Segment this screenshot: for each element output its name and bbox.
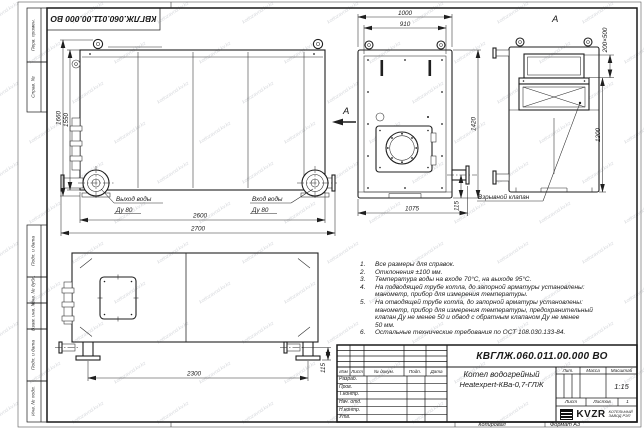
product-name-cell: Котел водогрейный Heatexpert-КВа-0,7-ГЛЖ xyxy=(447,369,556,390)
col-podp: Подп. xyxy=(404,369,426,374)
lit-mass-scale-header: Лит. Масса Масштаб xyxy=(556,367,637,375)
side-view: 1660 1550 2600 2700 Выход воды Ду 80 Вхо… xyxy=(56,39,357,236)
outlet-dn: Ду 80 xyxy=(115,207,133,214)
frame-label-podp-data-2: Подп. и дата xyxy=(32,340,37,370)
dim-2600: 2600 xyxy=(192,213,208,220)
signature-rows: Разраб. Пров. Т.контр. Нач. отд. Н.контр… xyxy=(339,376,369,422)
inlet-label: Вход воды xyxy=(252,195,283,203)
note-line: 1.Все размеры для справок. xyxy=(360,261,634,269)
dim-910: 910 xyxy=(400,21,411,28)
scale-label: Масштаб xyxy=(606,368,637,373)
logo-cell: KVZR КОТЕЛЬНЫЙ ЗАВОД РЭП xyxy=(556,406,637,422)
inlet-dn: Ду 80 xyxy=(251,207,269,214)
mass-label: Масса xyxy=(580,368,606,373)
row-prov: Пров. xyxy=(339,384,369,392)
top-stamp-text: КВГЛЖ.060.011.00.000 ВО xyxy=(47,8,160,30)
row-utv: Утв. xyxy=(339,414,369,422)
dim-2300: 2300 xyxy=(186,371,202,378)
frame-left-cells xyxy=(27,8,47,422)
sheets-value: 1 xyxy=(618,400,637,405)
front-view: 1000 910 1420 1075 115 xyxy=(358,10,481,216)
dim-115-plan: 115 xyxy=(320,362,327,373)
note-line: 5.На отводящей трубе котла, до запорной … xyxy=(360,299,634,307)
col-list: Лист xyxy=(350,369,364,374)
dim-1075: 1075 xyxy=(405,206,420,213)
kvzr-logo-mark xyxy=(560,409,573,420)
copy-label: Копировал xyxy=(460,422,524,428)
section-arrow xyxy=(332,119,343,126)
dim-200x500: 200×500 xyxy=(602,27,609,53)
frame-label-podp-data-1: Подп. и дата xyxy=(32,236,37,266)
frame-label-sprav-no: Справ. № xyxy=(32,76,37,98)
note-line: клапан Ду не менее 50 и обвод с обратным… xyxy=(360,314,634,322)
outlet-label: Выход воды xyxy=(116,195,152,203)
frame-label-perv-primen: Перв. примен. xyxy=(32,19,37,51)
dim-1420: 1420 xyxy=(470,117,477,132)
note-line: манометр, прибор для измерения температу… xyxy=(360,291,634,299)
designation-cell: КВГЛЖ.060.011.00.000 ВО xyxy=(447,346,637,366)
sheet-row: Лист Листов 1 xyxy=(556,398,637,406)
dim-1660: 1660 xyxy=(56,111,63,126)
frame-label-vzam-inv: Взам. инв. № xyxy=(32,301,37,331)
sheet-label: Лист xyxy=(556,400,586,405)
note-line: 6.Остальные технические требования по ОС… xyxy=(360,329,634,337)
col-izm: Изм xyxy=(337,369,350,374)
dim-1550: 1550 xyxy=(63,113,70,128)
drawing-sheet: kotlozavod.kv.kzkotlozavod.kv.kzkotlozav… xyxy=(0,0,644,430)
dim-1000: 1000 xyxy=(398,10,413,17)
dim-115-front: 115 xyxy=(454,200,461,211)
logo-sub2: ЗАВОД РЭП xyxy=(609,414,633,418)
section-letter: А xyxy=(342,106,349,117)
col-data: Дата xyxy=(426,369,447,374)
row-razrab: Разраб. xyxy=(339,376,369,384)
sheets-label: Листов xyxy=(586,400,618,405)
product-name-line1: Котел водогрейный xyxy=(447,369,556,380)
product-name-line2: Heatexpert-КВа-0,7-ГЛЖ xyxy=(447,380,556,390)
frame-label-inv-podl: Инв. № подл. xyxy=(32,386,37,416)
col-dokum: № докум. xyxy=(364,369,404,374)
dim-1200: 1200 xyxy=(595,128,602,143)
technical-notes: 1.Все размеры для справок. 2.Отклонения … xyxy=(360,261,634,337)
row-nkontr: Н.контр. xyxy=(339,407,369,415)
view-a-title: А xyxy=(551,14,558,25)
note-line: 3.Температура воды на входе 70°С, на вых… xyxy=(360,276,634,284)
kvzr-logo-text: KVZR xyxy=(576,409,605,420)
row-tkontr: Т.контр. xyxy=(339,391,369,399)
format-label: Формат А3 xyxy=(533,422,597,428)
scale-value: 1:15 xyxy=(606,375,637,397)
lit-label: Лит. xyxy=(556,368,580,373)
dim-2700: 2700 xyxy=(190,226,206,233)
plan-view: 2300 115 xyxy=(55,253,331,381)
view-a: 200×500 1200 Взрывной клапан А xyxy=(477,14,614,201)
row-nachotd: Нач. отд. xyxy=(339,399,369,407)
revision-header-row: Изм Лист № докум. Подп. Дата xyxy=(337,367,447,376)
valve-label: Взрывной клапан xyxy=(478,193,530,201)
